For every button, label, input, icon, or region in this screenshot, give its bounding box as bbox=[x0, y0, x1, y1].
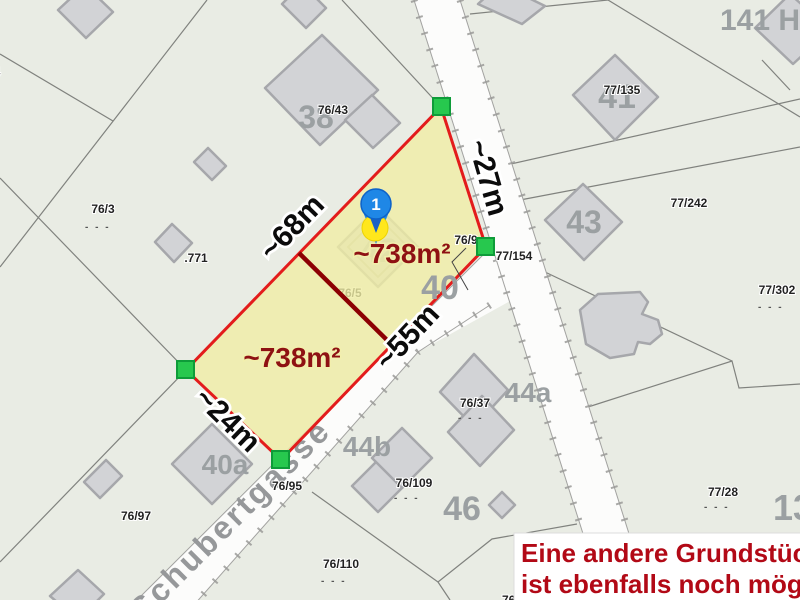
banner-line-1: Eine andere Grundstückstei bbox=[521, 538, 800, 568]
house-number-46: 46 bbox=[443, 490, 481, 528]
dots-marks: - - - bbox=[321, 576, 347, 587]
parcel-76-9: 76/9 bbox=[454, 233, 478, 247]
banner-line-2: ist ebenfalls noch möglich! bbox=[521, 569, 800, 599]
house-number-43: 43 bbox=[566, 204, 602, 240]
vertex-handle-right[interactable] bbox=[477, 238, 494, 255]
vertex-handle-bottom[interactable] bbox=[272, 451, 289, 468]
parcel-76-110: 76/110 bbox=[323, 557, 359, 571]
parcel-77-135: 77/135 bbox=[604, 83, 641, 97]
parcel-771: .771 bbox=[184, 251, 208, 265]
parcel-76-95: 76/95 bbox=[272, 479, 302, 493]
dots-marks: - - - bbox=[394, 493, 420, 504]
parcel-76-97: 76/97 bbox=[121, 509, 151, 523]
house-number-44b: 44b bbox=[343, 431, 391, 462]
map-canvas: 38 41 43 42 40a 44a 44b 46 141 H 13 Schu… bbox=[0, 0, 800, 600]
area-label-lower: ~738m² bbox=[243, 342, 340, 373]
parcel-77-154: 77/154 bbox=[496, 249, 533, 263]
parcel-77-28: 77/28 bbox=[708, 485, 738, 499]
house-number-40: 40 bbox=[421, 269, 459, 307]
parcel-76-3: 76/3 bbox=[91, 202, 115, 216]
dots-marks: - - - bbox=[458, 413, 484, 424]
vertex-handle-top[interactable] bbox=[433, 98, 450, 115]
note-banner: Eine andere Grundstückstei ist ebenfalls… bbox=[514, 533, 800, 600]
parcel-77-302: 77/302 bbox=[759, 283, 796, 297]
dots-marks: - - - bbox=[85, 222, 111, 233]
area-label-upper: ~738m² bbox=[353, 238, 450, 269]
dots-marks: - - - bbox=[704, 502, 730, 513]
parcel-76-37: 76/37 bbox=[460, 396, 490, 410]
vertex-handle-left[interactable] bbox=[177, 361, 194, 378]
parcel-76-43: 76/43 bbox=[318, 103, 348, 117]
cadastral-map: 38 41 43 42 40a 44a 44b 46 141 H 13 Schu… bbox=[0, 0, 800, 600]
parcel-77-242: 77/242 bbox=[671, 196, 708, 210]
house-number-13: 13 bbox=[773, 487, 800, 528]
house-number-44a: 44a bbox=[505, 377, 552, 408]
parcel-76-109: 76/109 bbox=[396, 476, 433, 490]
pin-number: 1 bbox=[371, 195, 380, 214]
dots-marks: - - - bbox=[758, 302, 784, 313]
house-number-141: 141 H bbox=[720, 4, 800, 37]
